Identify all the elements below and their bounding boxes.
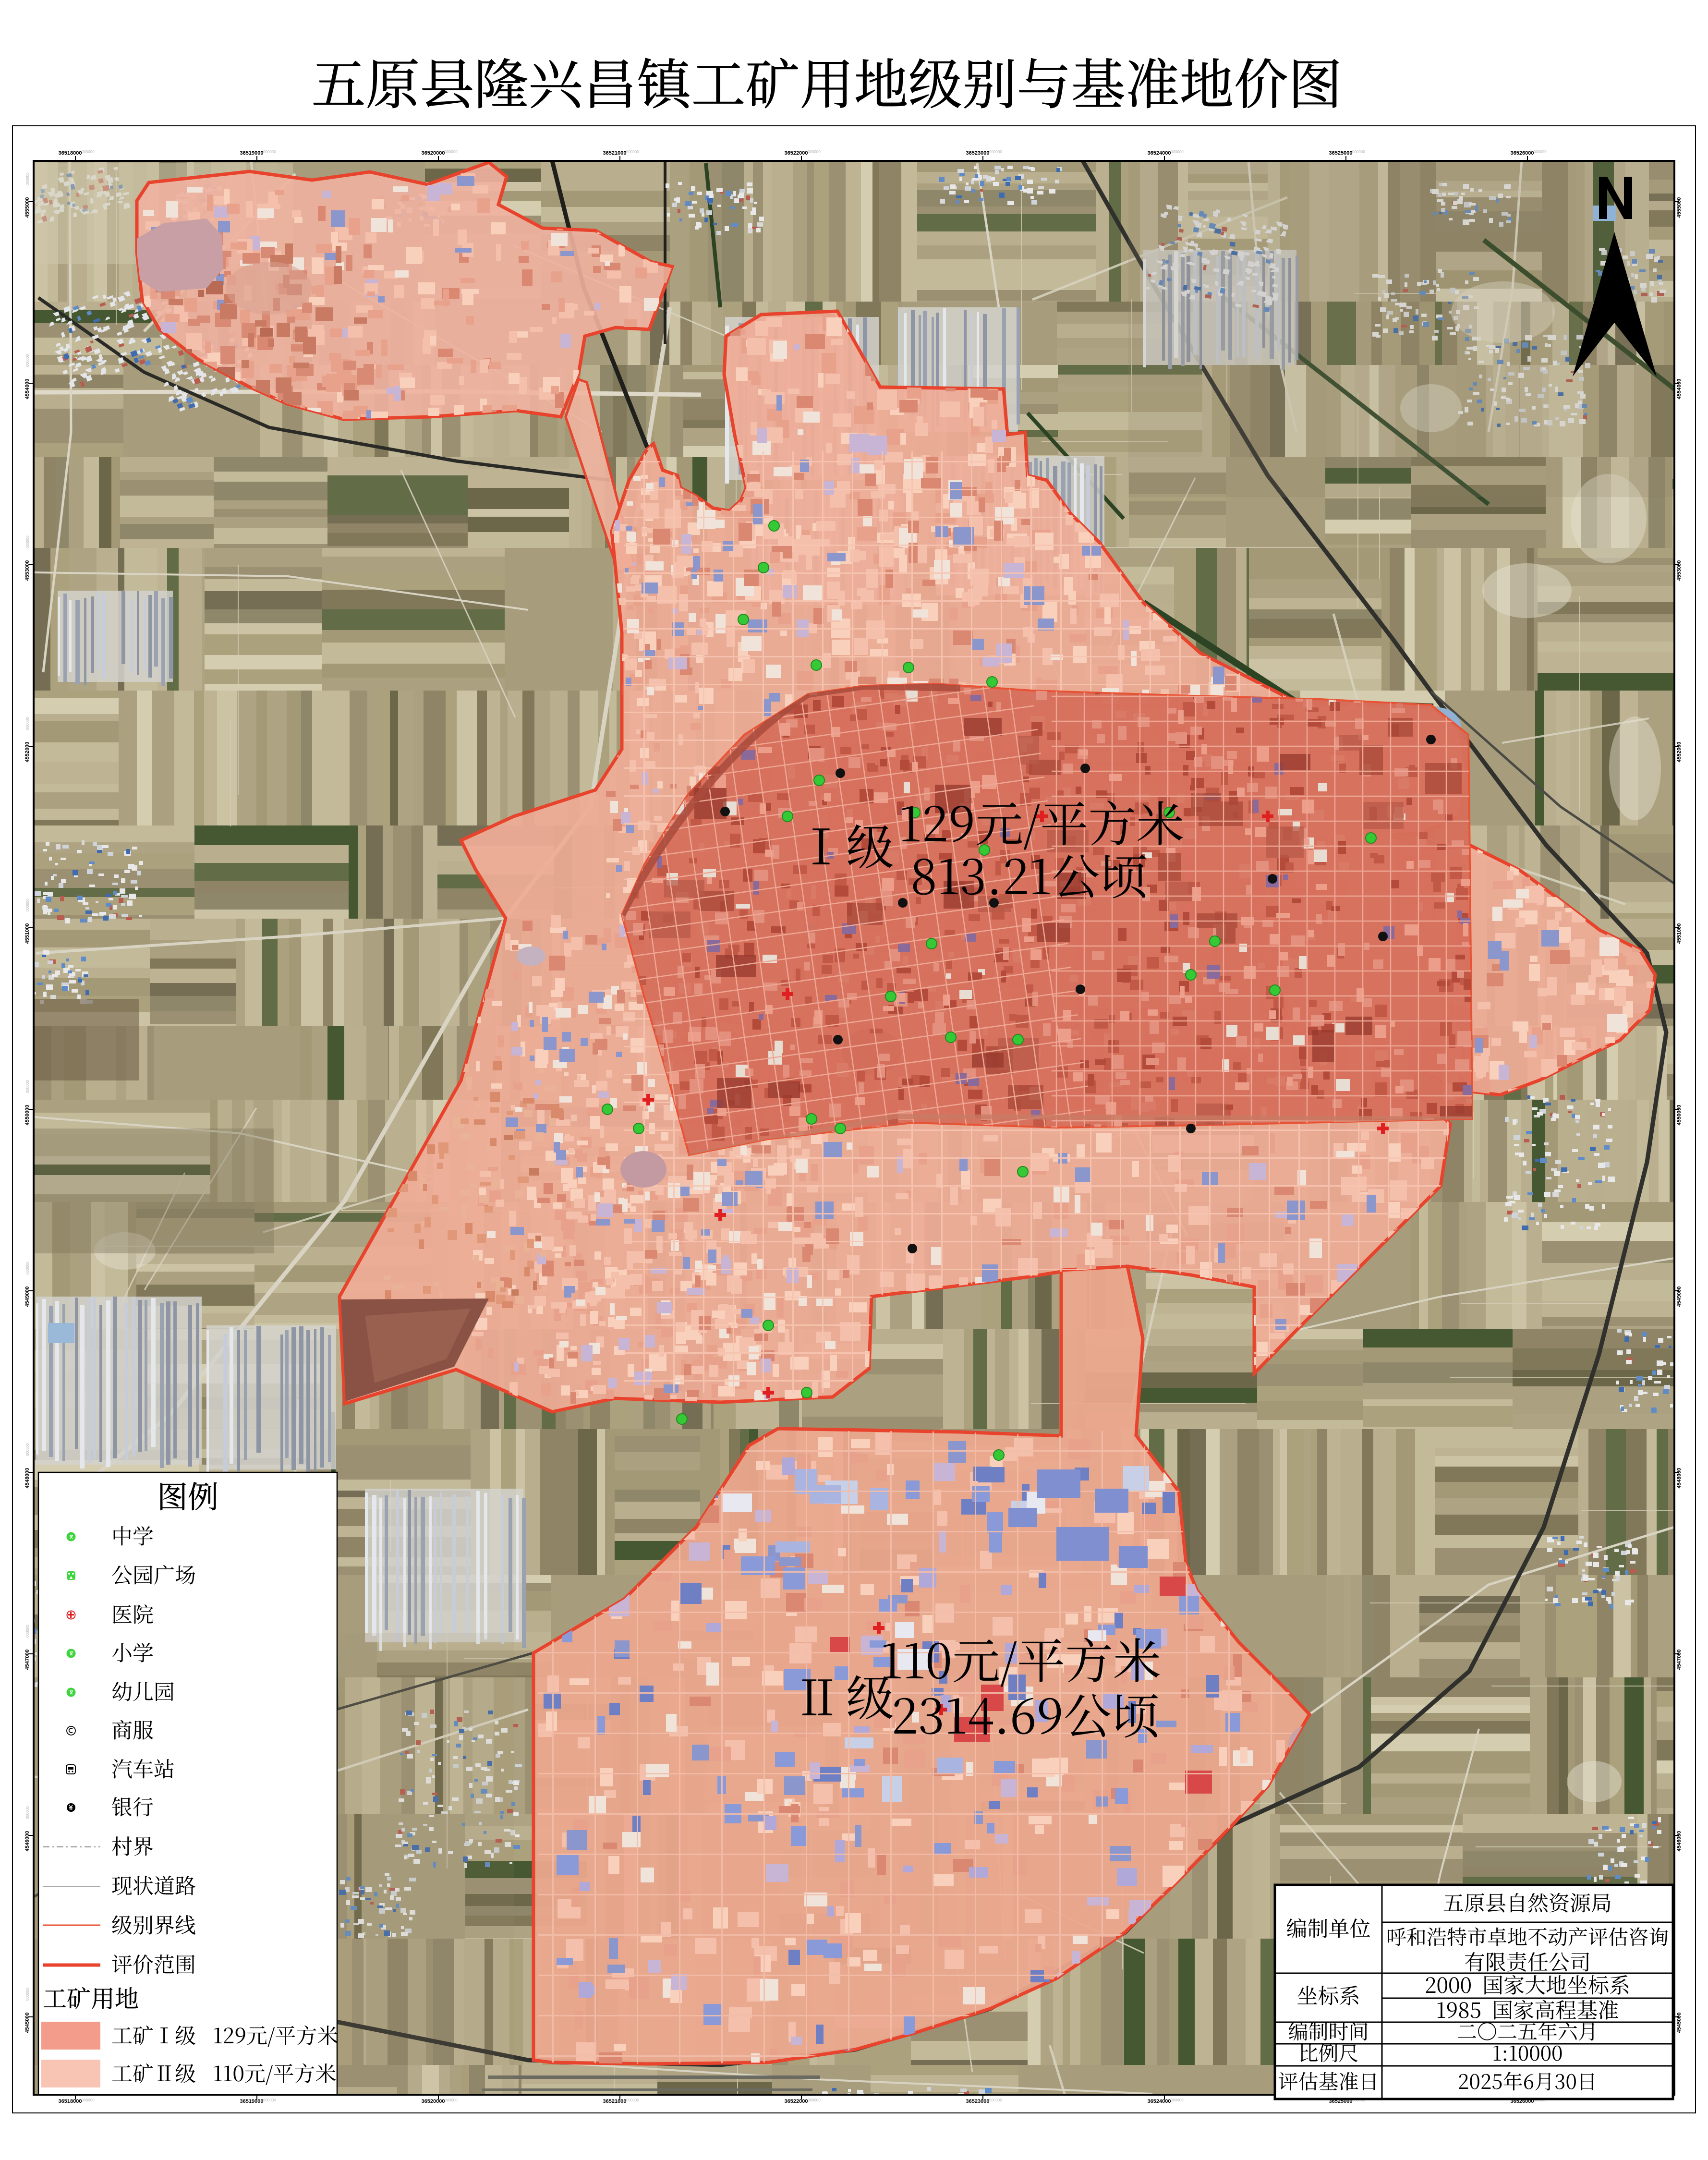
svg-text:4552000: 4552000 [1676,742,1682,763]
svg-text:36521000: 36521000 [603,150,627,156]
svg-text:000000: 000000 [1534,150,1547,154]
svg-text:36523000: 36523000 [966,2099,990,2104]
svg-text:4549000: 4549000 [24,1286,30,1307]
svg-text:000000: 000000 [445,2098,458,2102]
svg-text:4551000: 4551000 [24,923,30,944]
svg-text:36518000: 36518000 [59,2099,82,2104]
svg-text:4555000: 4555000 [1676,197,1682,218]
svg-text:000000: 000000 [1171,150,1184,154]
svg-text:000000: 000000 [989,2098,1002,2102]
svg-text:4548000: 4548000 [24,1468,30,1489]
svg-text:4554000: 4554000 [1676,379,1682,400]
svg-text:36523000: 36523000 [966,150,990,156]
svg-text:000000: 000000 [82,2098,95,2102]
svg-text:000000: 000000 [25,898,30,911]
svg-text:000000: 000000 [626,2098,639,2102]
svg-text:000000: 000000 [808,150,821,154]
svg-text:000000: 000000 [263,2098,276,2102]
svg-text:4545000: 4545000 [1676,2013,1682,2033]
svg-text:36522000: 36522000 [785,2099,808,2104]
svg-text:000000: 000000 [25,535,30,548]
svg-text:36519000: 36519000 [240,2099,264,2104]
svg-text:4547000: 4547000 [1676,1650,1682,1670]
svg-text:4555000: 4555000 [24,197,30,218]
svg-text:4547000: 4547000 [24,1650,30,1670]
svg-text:000000: 000000 [25,1806,30,1819]
svg-text:36522000: 36522000 [785,150,808,156]
svg-text:4550000: 4550000 [24,1105,30,1126]
svg-text:000000: 000000 [445,150,458,154]
svg-text:36520000: 36520000 [422,2099,445,2104]
svg-text:000000: 000000 [25,354,30,367]
svg-text:36524000: 36524000 [1148,150,1171,156]
svg-text:4546000: 4546000 [24,1831,30,1852]
svg-text:000000: 000000 [1352,150,1365,154]
svg-text:36520000: 36520000 [422,150,445,156]
svg-text:000000: 000000 [25,717,30,730]
svg-text:000000: 000000 [25,1443,30,1456]
svg-text:36525000: 36525000 [1329,150,1353,156]
svg-text:000000: 000000 [82,150,95,154]
svg-text:000000: 000000 [25,1988,30,2001]
svg-text:4550000: 4550000 [1676,1105,1682,1126]
svg-text:4548000: 4548000 [1676,1468,1682,1489]
svg-text:4546000: 4546000 [1676,1831,1682,1852]
svg-text:36518000: 36518000 [59,150,82,156]
svg-text:36526000: 36526000 [1511,150,1534,156]
svg-text:4554000: 4554000 [24,379,30,400]
svg-text:36519000: 36519000 [240,150,264,156]
svg-text:4549000: 4549000 [1676,1286,1682,1307]
svg-text:4545000: 4545000 [24,2013,30,2033]
svg-text:000000: 000000 [263,150,276,154]
svg-text:000000: 000000 [25,1262,30,1274]
svg-text:4553000: 4553000 [1676,560,1682,581]
svg-text:000000: 000000 [1171,2098,1184,2102]
svg-text:36524000: 36524000 [1148,2099,1171,2104]
svg-text:4553000: 4553000 [24,560,30,581]
svg-text:000000: 000000 [989,150,1002,154]
svg-text:000000: 000000 [25,172,30,185]
svg-text:000000: 000000 [626,150,639,154]
svg-text:000000: 000000 [808,2098,821,2102]
svg-text:36521000: 36521000 [603,2099,627,2104]
svg-text:000000: 000000 [25,1625,30,1638]
svg-text:000000: 000000 [25,1080,30,1093]
svg-text:4552000: 4552000 [24,742,30,763]
svg-text:4551000: 4551000 [1676,923,1682,944]
